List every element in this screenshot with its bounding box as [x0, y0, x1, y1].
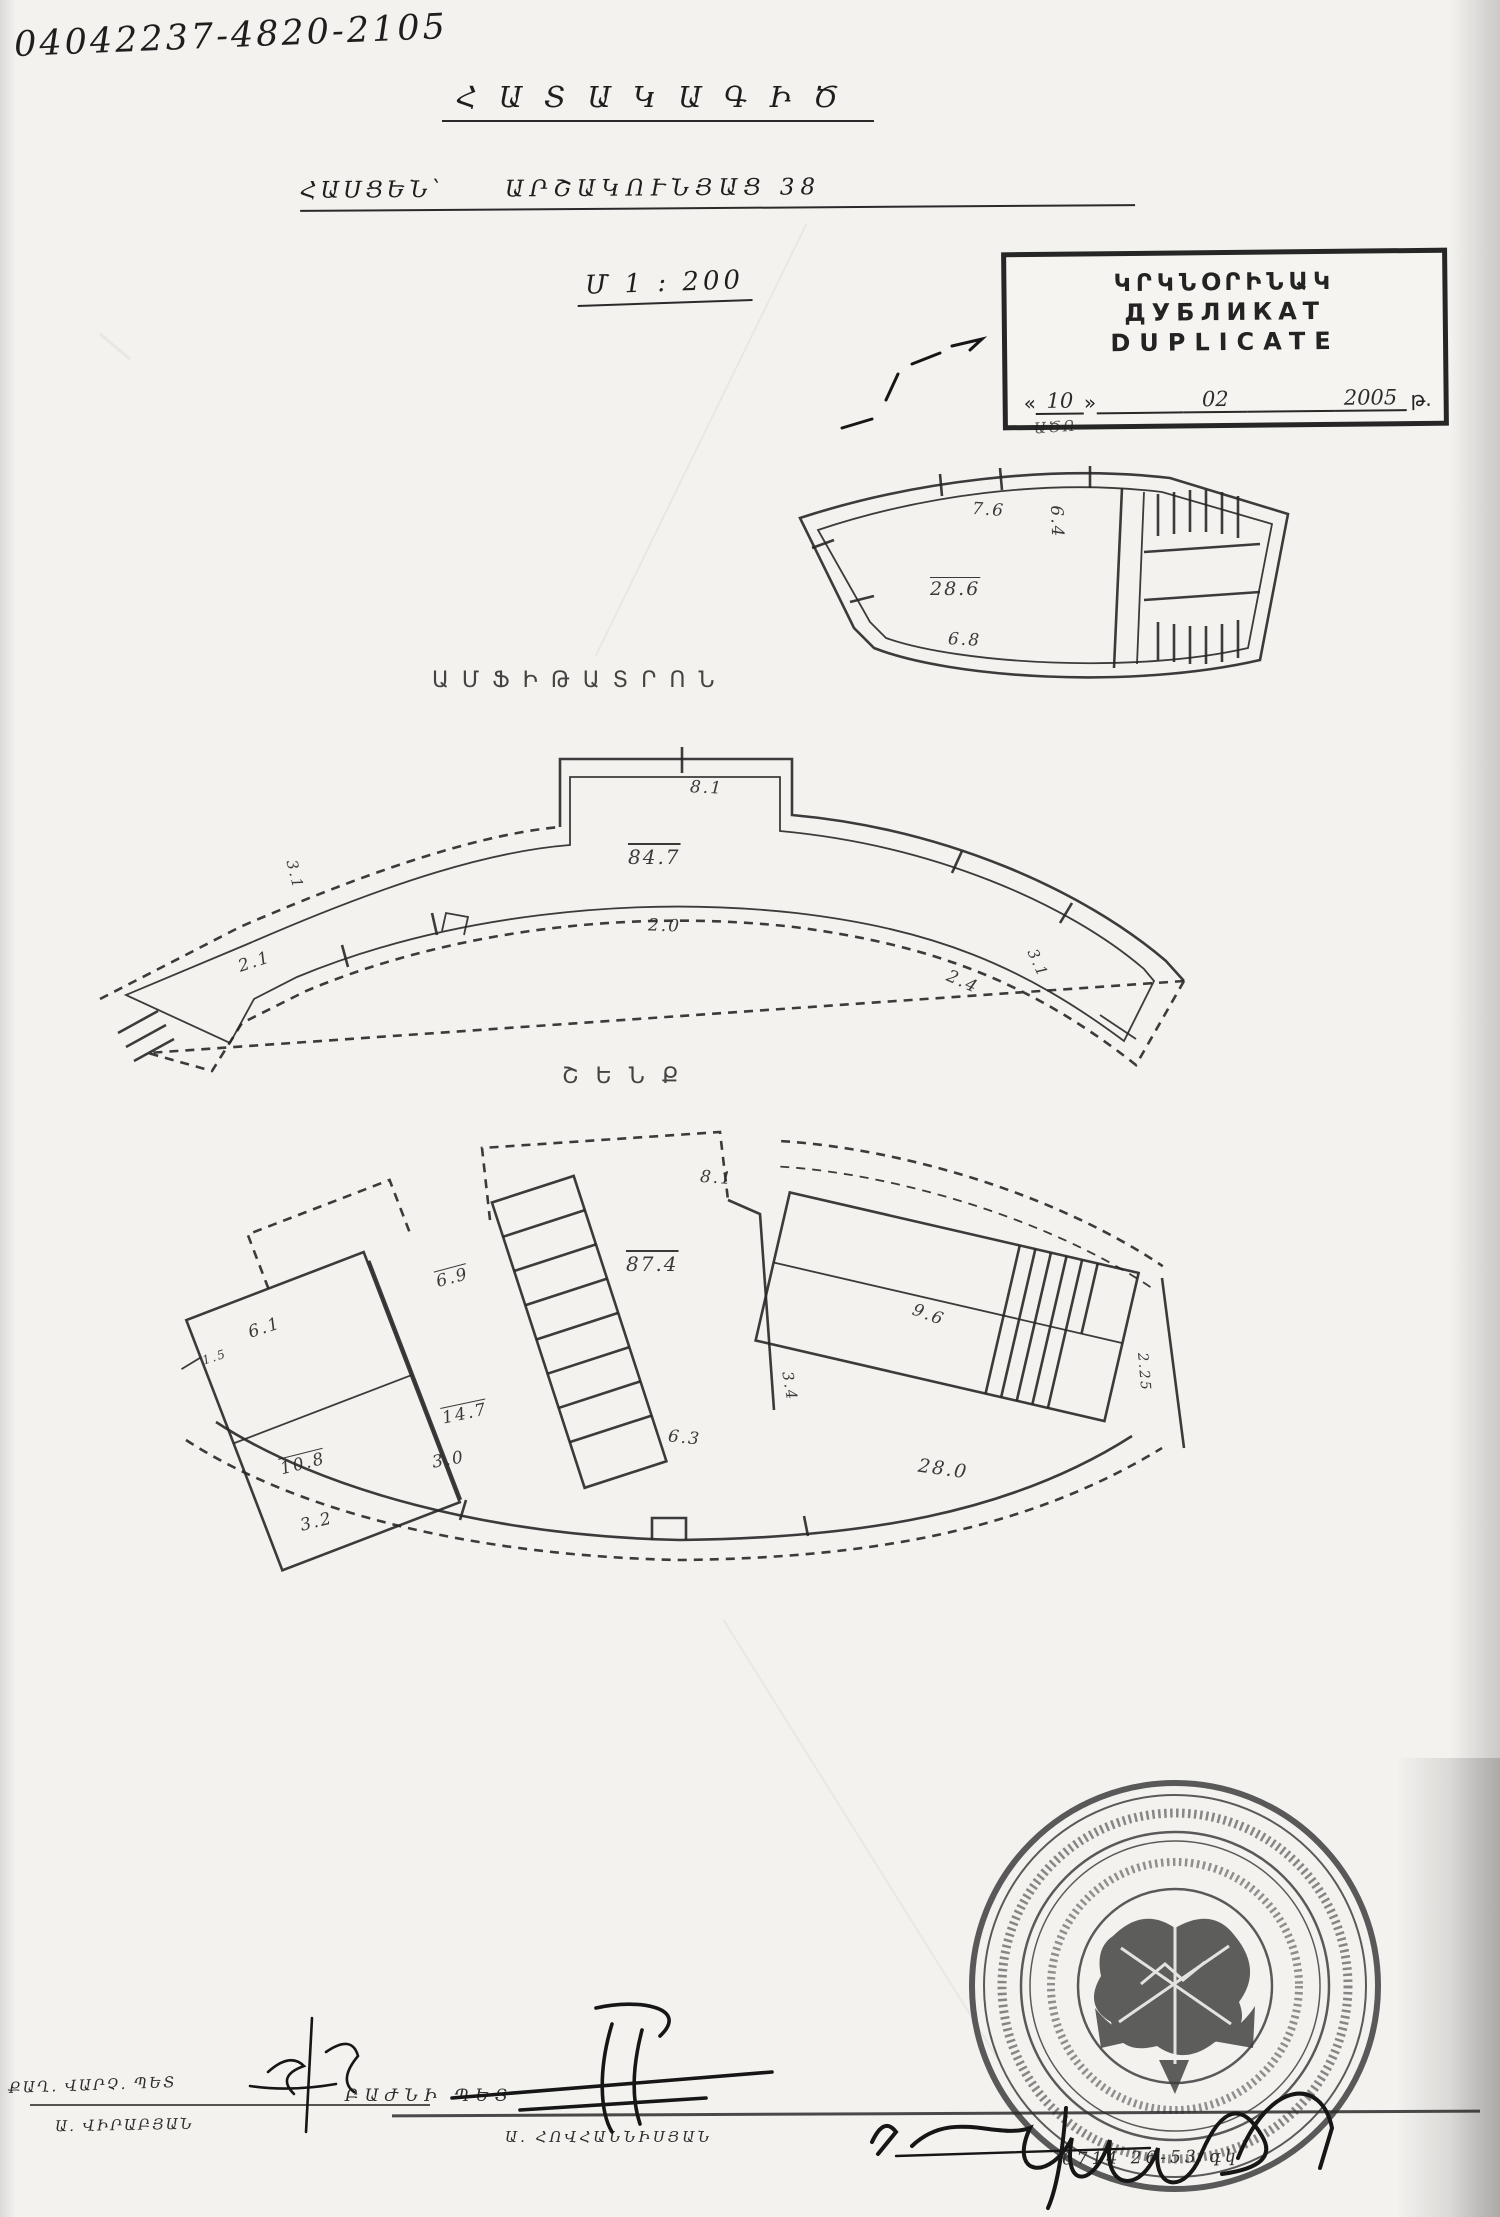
- outer-wall: [800, 473, 1288, 677]
- area-label: 84.7: [628, 845, 681, 869]
- area-label: 28.6: [930, 578, 980, 600]
- outer-wall: [560, 759, 1184, 981]
- quote-open: «: [1024, 391, 1037, 415]
- dimension-label: 6.3: [667, 1426, 702, 1449]
- signatures-overlay: [0, 1990, 1500, 2217]
- hall-side-wall: [728, 1200, 774, 1410]
- smudge: [99, 332, 132, 360]
- outer-wall: [100, 827, 560, 999]
- right-room-block: [736, 1132, 1173, 1426]
- dimension-label: 6.4: [1046, 505, 1067, 539]
- duplicate-stamp: ԿՐԿՆՕՐԻՆԱԿ ДУБЛИКАТ DUPLICATE « 10 » 02 …: [1001, 248, 1449, 431]
- stamp-year: 2005: [1334, 385, 1406, 412]
- dimension-label: 6.8: [947, 629, 981, 651]
- right-edge-wall: [1162, 1278, 1184, 1448]
- dimension-label: 2.0: [648, 915, 682, 936]
- stamp-side-note: ԱԾՈ: [1033, 417, 1077, 438]
- stamp-day: 10: [1036, 388, 1084, 415]
- outer-wall: [186, 1440, 1162, 1560]
- address-label: ՀԱՍՑԵՆ՝: [300, 177, 444, 204]
- left-end-stairs-hatch: [118, 1011, 174, 1061]
- amphitheater-plan-drawing: [92, 733, 1192, 1083]
- stamp-year-suffix: թ.: [1410, 387, 1431, 411]
- area-label: 87.4: [626, 1252, 679, 1276]
- dimension-label: 7.6: [971, 499, 1005, 521]
- dimension-label: 2.25: [1134, 1352, 1153, 1392]
- pen-scribble: [820, 330, 1000, 440]
- quote-close: »: [1084, 390, 1097, 414]
- address-line: ՀԱՍՑԵՆ՝ ԱՐՇԱԿՈՒՆՅԱՑ 38: [300, 172, 1135, 212]
- central-stairs: [492, 1176, 666, 1488]
- inner-wall: [818, 487, 1272, 663]
- center-signature: [452, 2004, 772, 2132]
- stair-shaft-wall: [1137, 492, 1144, 664]
- stamp-line-segment: [1096, 391, 1183, 414]
- ref-number: 04042237-4820-2105: [13, 7, 448, 65]
- stamp-line-segment: [1247, 390, 1334, 413]
- page-title: ՀԱՏԱԿԱԳԻԾ: [388, 80, 928, 114]
- stamp-text-armenian: ԿՐԿՆՕՐԻՆԱԿ: [1006, 266, 1442, 299]
- page-title-text: ՀԱՏԱԿԱԳԻԾ: [442, 80, 874, 122]
- attic-floor-plan-drawing: [790, 452, 1300, 692]
- top-right-wall: [773, 1132, 1173, 1267]
- stair-shaft-wall: [1114, 488, 1122, 668]
- scale-label: Մ 1 ։ 200: [565, 268, 765, 304]
- amphitheater-caption: ԱՄՖԻԹԱՏՐՈՆ: [432, 668, 728, 693]
- stamp-text-english: DUPLICATE: [1007, 326, 1443, 359]
- stamp-text-russian: ДУБЛИКАТ: [1007, 296, 1443, 329]
- scanned-floorplan-document: 04042237-4820-2105 ՀԱՏԱԿԱԳԻԾ ՀԱՍՑԵՆ՝ ԱՐՇ…: [0, 0, 1500, 2217]
- right-stairs-hatch: [986, 1245, 1098, 1411]
- outer-wall: [148, 921, 1184, 1071]
- door-notches: [460, 1500, 808, 1540]
- hall-top-wall: [482, 1132, 728, 1220]
- left-edge-shadow: [0, 0, 16, 2217]
- dimension-label: 8.1: [689, 777, 723, 799]
- stamp-month: 02: [1183, 387, 1247, 414]
- address-value: ԱՐՇԱԿՈՒՆՅԱՑ 38: [505, 174, 821, 202]
- dimension-label: 8.1: [699, 1167, 733, 1189]
- ground-floor-caption: ՇԵՆՔ: [562, 1064, 695, 1089]
- stamp-date-row: « 10 » 02 2005 թ.: [1024, 385, 1432, 415]
- left-signature: [250, 2018, 358, 2132]
- ground-floor-plan-drawing: [160, 1122, 1200, 1572]
- right-signature: [872, 2094, 1332, 2208]
- top-right-wall: [772, 1158, 1162, 1289]
- scale-text: Մ 1 ։ 200: [577, 265, 753, 307]
